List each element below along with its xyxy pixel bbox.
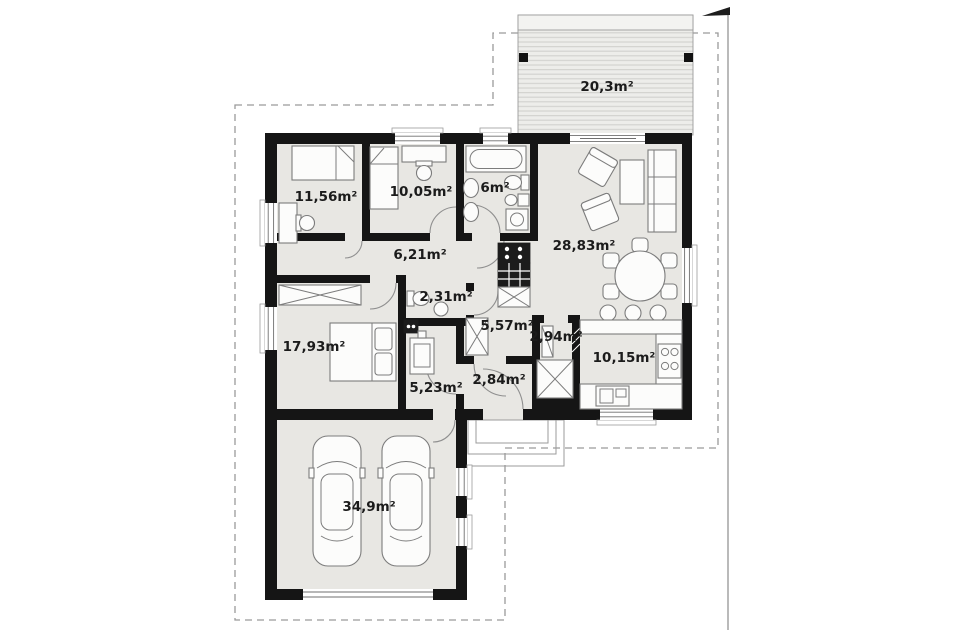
room-label-utility-room: 5,23m² xyxy=(409,380,462,396)
sofa-icon xyxy=(648,150,676,232)
floor-plan-svg: 20,3m² 11,56m² 10,05m² 6m² 28,83m² 6,21m… xyxy=(0,0,960,630)
wardrobe-icon xyxy=(279,285,361,305)
room-label-vestibule: 2,84m² xyxy=(472,372,525,388)
bar-stool-icon xyxy=(600,305,666,321)
terrace-post xyxy=(684,53,693,62)
sliding-door xyxy=(570,133,645,144)
garage-door xyxy=(303,589,433,600)
room-label-kitchen: 10,15m² xyxy=(593,350,656,366)
floor-plan-page: 20,3m² 11,56m² 10,05m² 6m² 28,83m² 6,21m… xyxy=(0,0,960,630)
porch-steps xyxy=(460,420,564,466)
single-bed-icon xyxy=(292,146,354,180)
room-label-corridor: 5,57m² xyxy=(480,318,533,334)
room-label-bedroom-2: 10,05m² xyxy=(390,184,453,200)
fridge-icon xyxy=(498,243,530,307)
stove-icon xyxy=(658,344,681,378)
room-label-garage: 34,9m² xyxy=(342,499,395,515)
bathtub-icon xyxy=(466,146,526,172)
room-label-pantry: 2,94m² xyxy=(529,329,582,345)
terrace-deck xyxy=(518,15,693,135)
kitchen-sink-icon xyxy=(596,386,629,406)
property-line-marker xyxy=(702,7,730,630)
room-label-hallway: 6,21m² xyxy=(393,247,446,263)
room-label-bathroom: 6m² xyxy=(480,180,509,196)
room-label-bedroom-1: 11,56m² xyxy=(295,189,358,205)
terrace-post xyxy=(519,53,528,62)
washing-machine-icon xyxy=(506,209,528,230)
room-label-living-room: 28,83m² xyxy=(553,238,616,254)
room-label-toilet: 2,31m² xyxy=(419,289,472,305)
room-label-bedroom-3: 17,93m² xyxy=(283,339,346,355)
room-label-terrace: 20,3m² xyxy=(580,79,633,95)
coffee-table-icon xyxy=(620,160,644,204)
